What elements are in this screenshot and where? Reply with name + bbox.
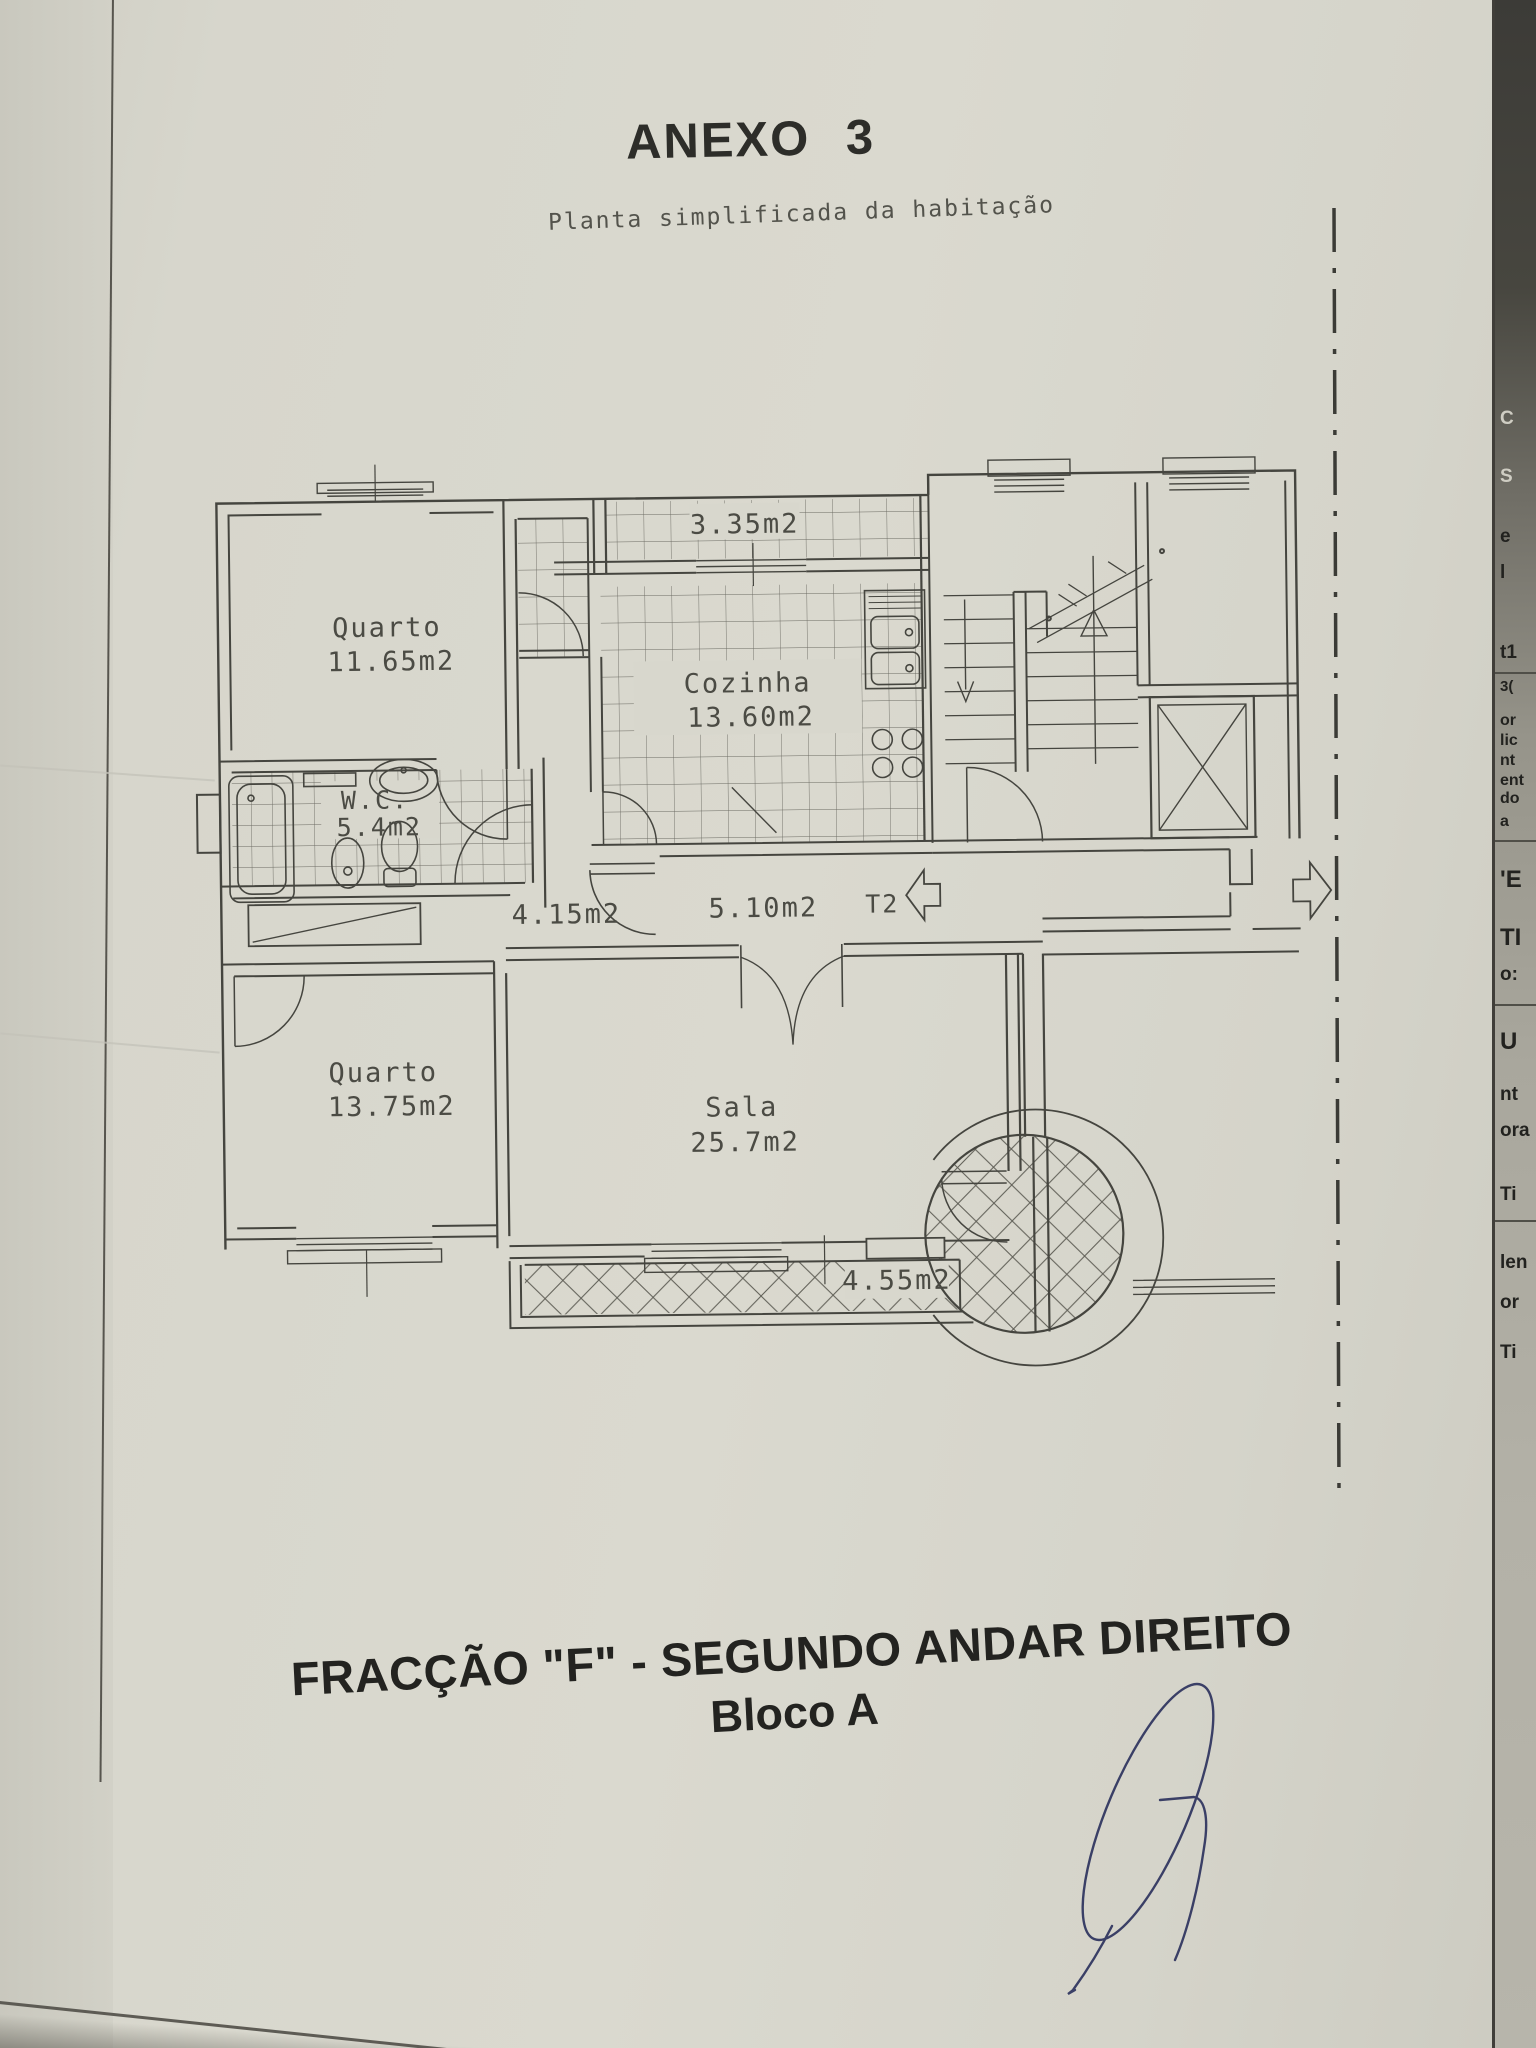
edge-rule: [1495, 840, 1536, 842]
edge-text-fragment: Ti: [1500, 1342, 1517, 1364]
signature-stroke: [1160, 1797, 1206, 1960]
edge-text-fragment: C: [1500, 408, 1514, 430]
room-label-cozinha: Cozinha: [684, 667, 812, 700]
scanned-document-page: ANEXO 3 Planta simplificada da habitação: [0, 0, 1536, 2048]
edge-text-fragment: or: [1500, 1292, 1519, 1314]
elevator-shaft: [1150, 696, 1256, 838]
edge-rule: [1495, 1220, 1536, 1222]
area-label-hall: 4.15m2: [511, 899, 621, 931]
room-area-quarto1: 11.65m2: [327, 646, 455, 679]
edge-text-fragment: Ti: [1500, 1184, 1517, 1206]
bedroom2-walls: [222, 961, 510, 1298]
stairwell: [928, 456, 1300, 842]
edge-text-fragment: or: [1500, 712, 1516, 730]
stair-treads: [944, 595, 1016, 764]
edge-text-fragment: nt: [1500, 1084, 1518, 1106]
edge-rule: [1495, 672, 1536, 674]
edge-text-fragment: TI: [1500, 924, 1521, 952]
window: [651, 1243, 781, 1259]
closet: [248, 903, 420, 946]
room-label-quarto2: Quarto: [328, 1057, 438, 1089]
room-label-sala: Sala: [705, 1092, 778, 1124]
room-label-wc: W.C.: [341, 785, 410, 815]
area-label-varanda: 4.55m2: [842, 1265, 952, 1297]
floor-plan: Quarto 11.65m2 3.35m2 Cozinha 13.60m2 W.…: [193, 453, 1337, 1376]
room-label-quarto1: Quarto: [332, 612, 442, 644]
edge-text-fragment: S: [1500, 466, 1513, 488]
edge-text-fragment: o:: [1500, 964, 1518, 986]
window: [696, 559, 806, 572]
stair-down-arrow: [957, 599, 974, 701]
unit-type-label: T2: [865, 889, 899, 918]
edge-rule: [1495, 1004, 1536, 1006]
edge-text-fragment: len: [1500, 1252, 1527, 1274]
edge-text-fragment: ent: [1500, 772, 1524, 790]
edge-text-fragment: l: [1500, 562, 1505, 584]
marquise-tiles: [518, 518, 590, 658]
edge-text-fragment: 3(: [1500, 678, 1513, 695]
edge-text-fragment: nt: [1500, 752, 1515, 770]
area-label-marquise: 3.35m2: [690, 508, 800, 540]
stair-treads: [1026, 627, 1138, 748]
entrance-arrow: [1293, 862, 1332, 918]
edge-text-fragment: t1: [1500, 642, 1517, 664]
balcony-door-leaf: [866, 1238, 944, 1259]
edge-text-fragment: U: [1500, 1028, 1517, 1056]
room-area-cozinha: 13.60m2: [687, 701, 815, 734]
unit-type-arrow: [906, 870, 941, 920]
window: [1133, 1279, 1275, 1295]
flue: [197, 795, 221, 853]
room-area-quarto2: 13.75m2: [328, 1091, 456, 1124]
property-dash-line: [1334, 208, 1339, 1492]
edge-text-fragment: 'E: [1500, 866, 1522, 894]
underlying-page-edge: C S e l t1 3( or lic nt ent do a 'E TI o…: [1492, 0, 1536, 2048]
corridor-walls: [933, 836, 1301, 955]
edge-text-fragment: lic: [1500, 732, 1518, 750]
edge-text-fragment: ora: [1500, 1120, 1530, 1142]
edge-text-fragment: do: [1500, 790, 1520, 808]
edge-text-fragment: a: [1500, 813, 1509, 831]
apartment-entry-door: [967, 767, 1043, 843]
area-label-corredor: 5.10m2: [708, 892, 818, 924]
window-sill: [287, 1249, 441, 1264]
room-area-wc: 5.4m2: [337, 812, 423, 842]
french-doors: [741, 956, 845, 1045]
edge-text-fragment: e: [1500, 526, 1511, 548]
room-area-sala: 25.7m2: [690, 1127, 800, 1159]
